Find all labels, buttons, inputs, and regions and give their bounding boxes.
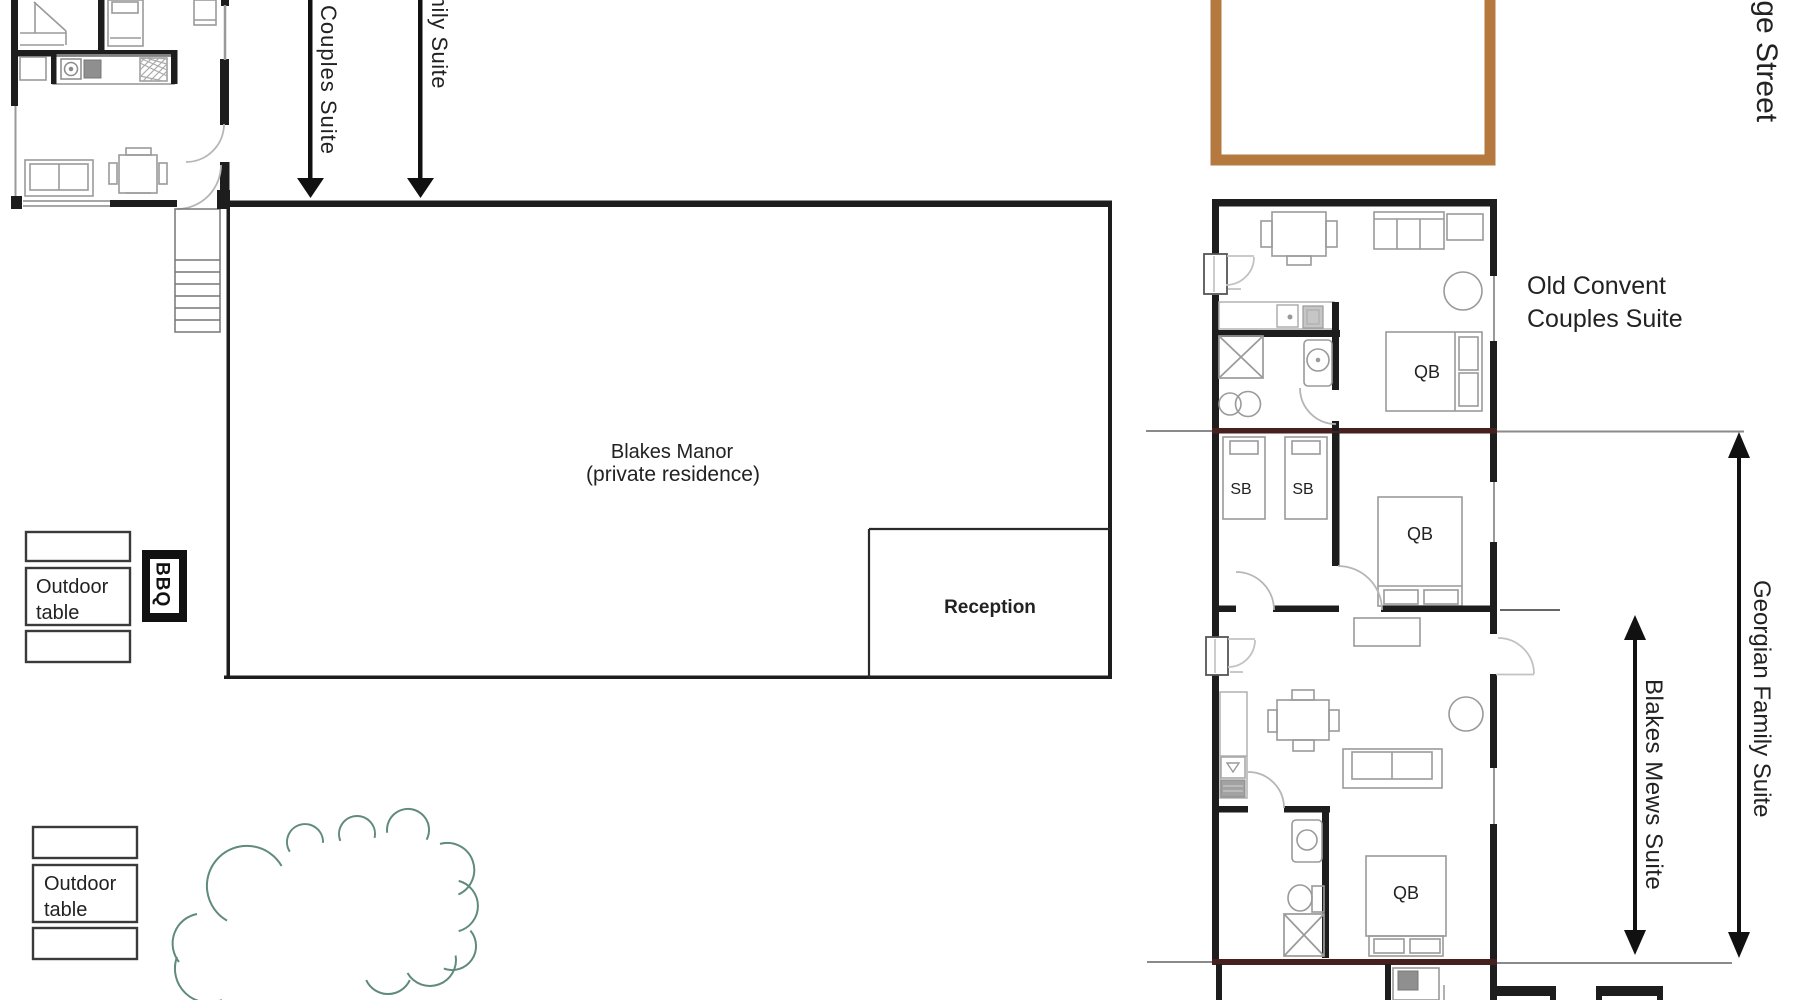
svg-text:Reception: Reception xyxy=(944,597,1036,618)
svg-text:Outdoor: Outdoor xyxy=(36,576,109,598)
svg-text:SB: SB xyxy=(1230,481,1251,498)
svg-text:table: table xyxy=(36,602,79,624)
svg-text:SB: SB xyxy=(1292,481,1313,498)
svg-text:Couples Suite: Couples Suite xyxy=(1527,305,1683,333)
svg-text:Couples Suite: Couples Suite xyxy=(316,5,341,155)
svg-text:Bridge Street: Bridge Street xyxy=(1750,0,1783,123)
svg-text:Family Suite: Family Suite xyxy=(427,0,452,89)
svg-text:Georgian Family Suite: Georgian Family Suite xyxy=(1748,580,1775,817)
svg-text:QB: QB xyxy=(1414,362,1440,382)
svg-text:Outdoor: Outdoor xyxy=(44,873,117,895)
svg-text:QB: QB xyxy=(1393,883,1419,903)
svg-text:QB: QB xyxy=(1407,524,1433,544)
svg-text:Blakes Mews Suite: Blakes Mews Suite xyxy=(1640,679,1667,890)
svg-text:BBQ: BBQ xyxy=(152,562,173,607)
svg-text:Old Convent: Old Convent xyxy=(1527,272,1666,300)
svg-text:(private residence): (private residence) xyxy=(586,463,760,486)
svg-text:table: table xyxy=(44,899,87,921)
svg-text:Blakes Manor: Blakes Manor xyxy=(611,441,734,463)
